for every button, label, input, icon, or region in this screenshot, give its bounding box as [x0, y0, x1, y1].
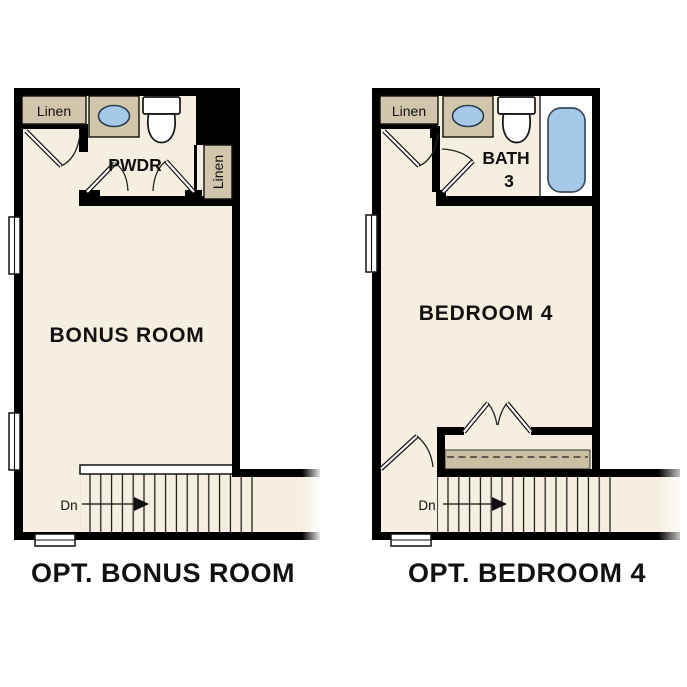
sink-icon — [89, 96, 139, 137]
bedroom-4-plan: Linen — [366, 88, 687, 588]
closet-shelf — [445, 450, 590, 469]
linen-closet-side: Linen — [204, 145, 232, 199]
window — [9, 413, 20, 470]
bonus-room-plan: Linen Linen PWDR — [9, 88, 322, 588]
room-label: BONUS ROOM — [50, 324, 205, 347]
linen-label: Linen — [392, 103, 426, 119]
linen-side-label: Linen — [210, 155, 226, 189]
stair-treads — [80, 474, 253, 532]
svg-text:3: 3 — [504, 171, 514, 191]
down-label: Dn — [418, 498, 435, 513]
plan-caption: OPT. BEDROOM 4 — [408, 558, 646, 588]
bathtub-icon — [540, 96, 592, 196]
corridor-fade — [658, 460, 687, 550]
window — [391, 534, 431, 546]
corridor-fade — [302, 460, 322, 550]
linen-closet: Linen — [22, 96, 86, 124]
staircase — [80, 465, 253, 532]
room-label: BEDROOM 4 — [419, 302, 553, 325]
sink-icon — [443, 96, 493, 137]
floor-plan-page: Linen Linen PWDR — [0, 0, 687, 687]
window — [9, 217, 20, 274]
svg-text:BATH: BATH — [482, 148, 529, 168]
linen-label: Linen — [37, 103, 71, 119]
stair-railing — [80, 465, 234, 474]
linen-closet: Linen — [380, 96, 438, 124]
powder-label: PWDR — [108, 155, 162, 175]
plan-caption: OPT. BONUS ROOM — [31, 558, 295, 588]
staircase — [437, 477, 611, 532]
floor-plan-image: Linen Linen PWDR — [0, 0, 687, 687]
window — [35, 534, 75, 546]
window — [366, 215, 377, 272]
down-label: Dn — [60, 498, 77, 513]
